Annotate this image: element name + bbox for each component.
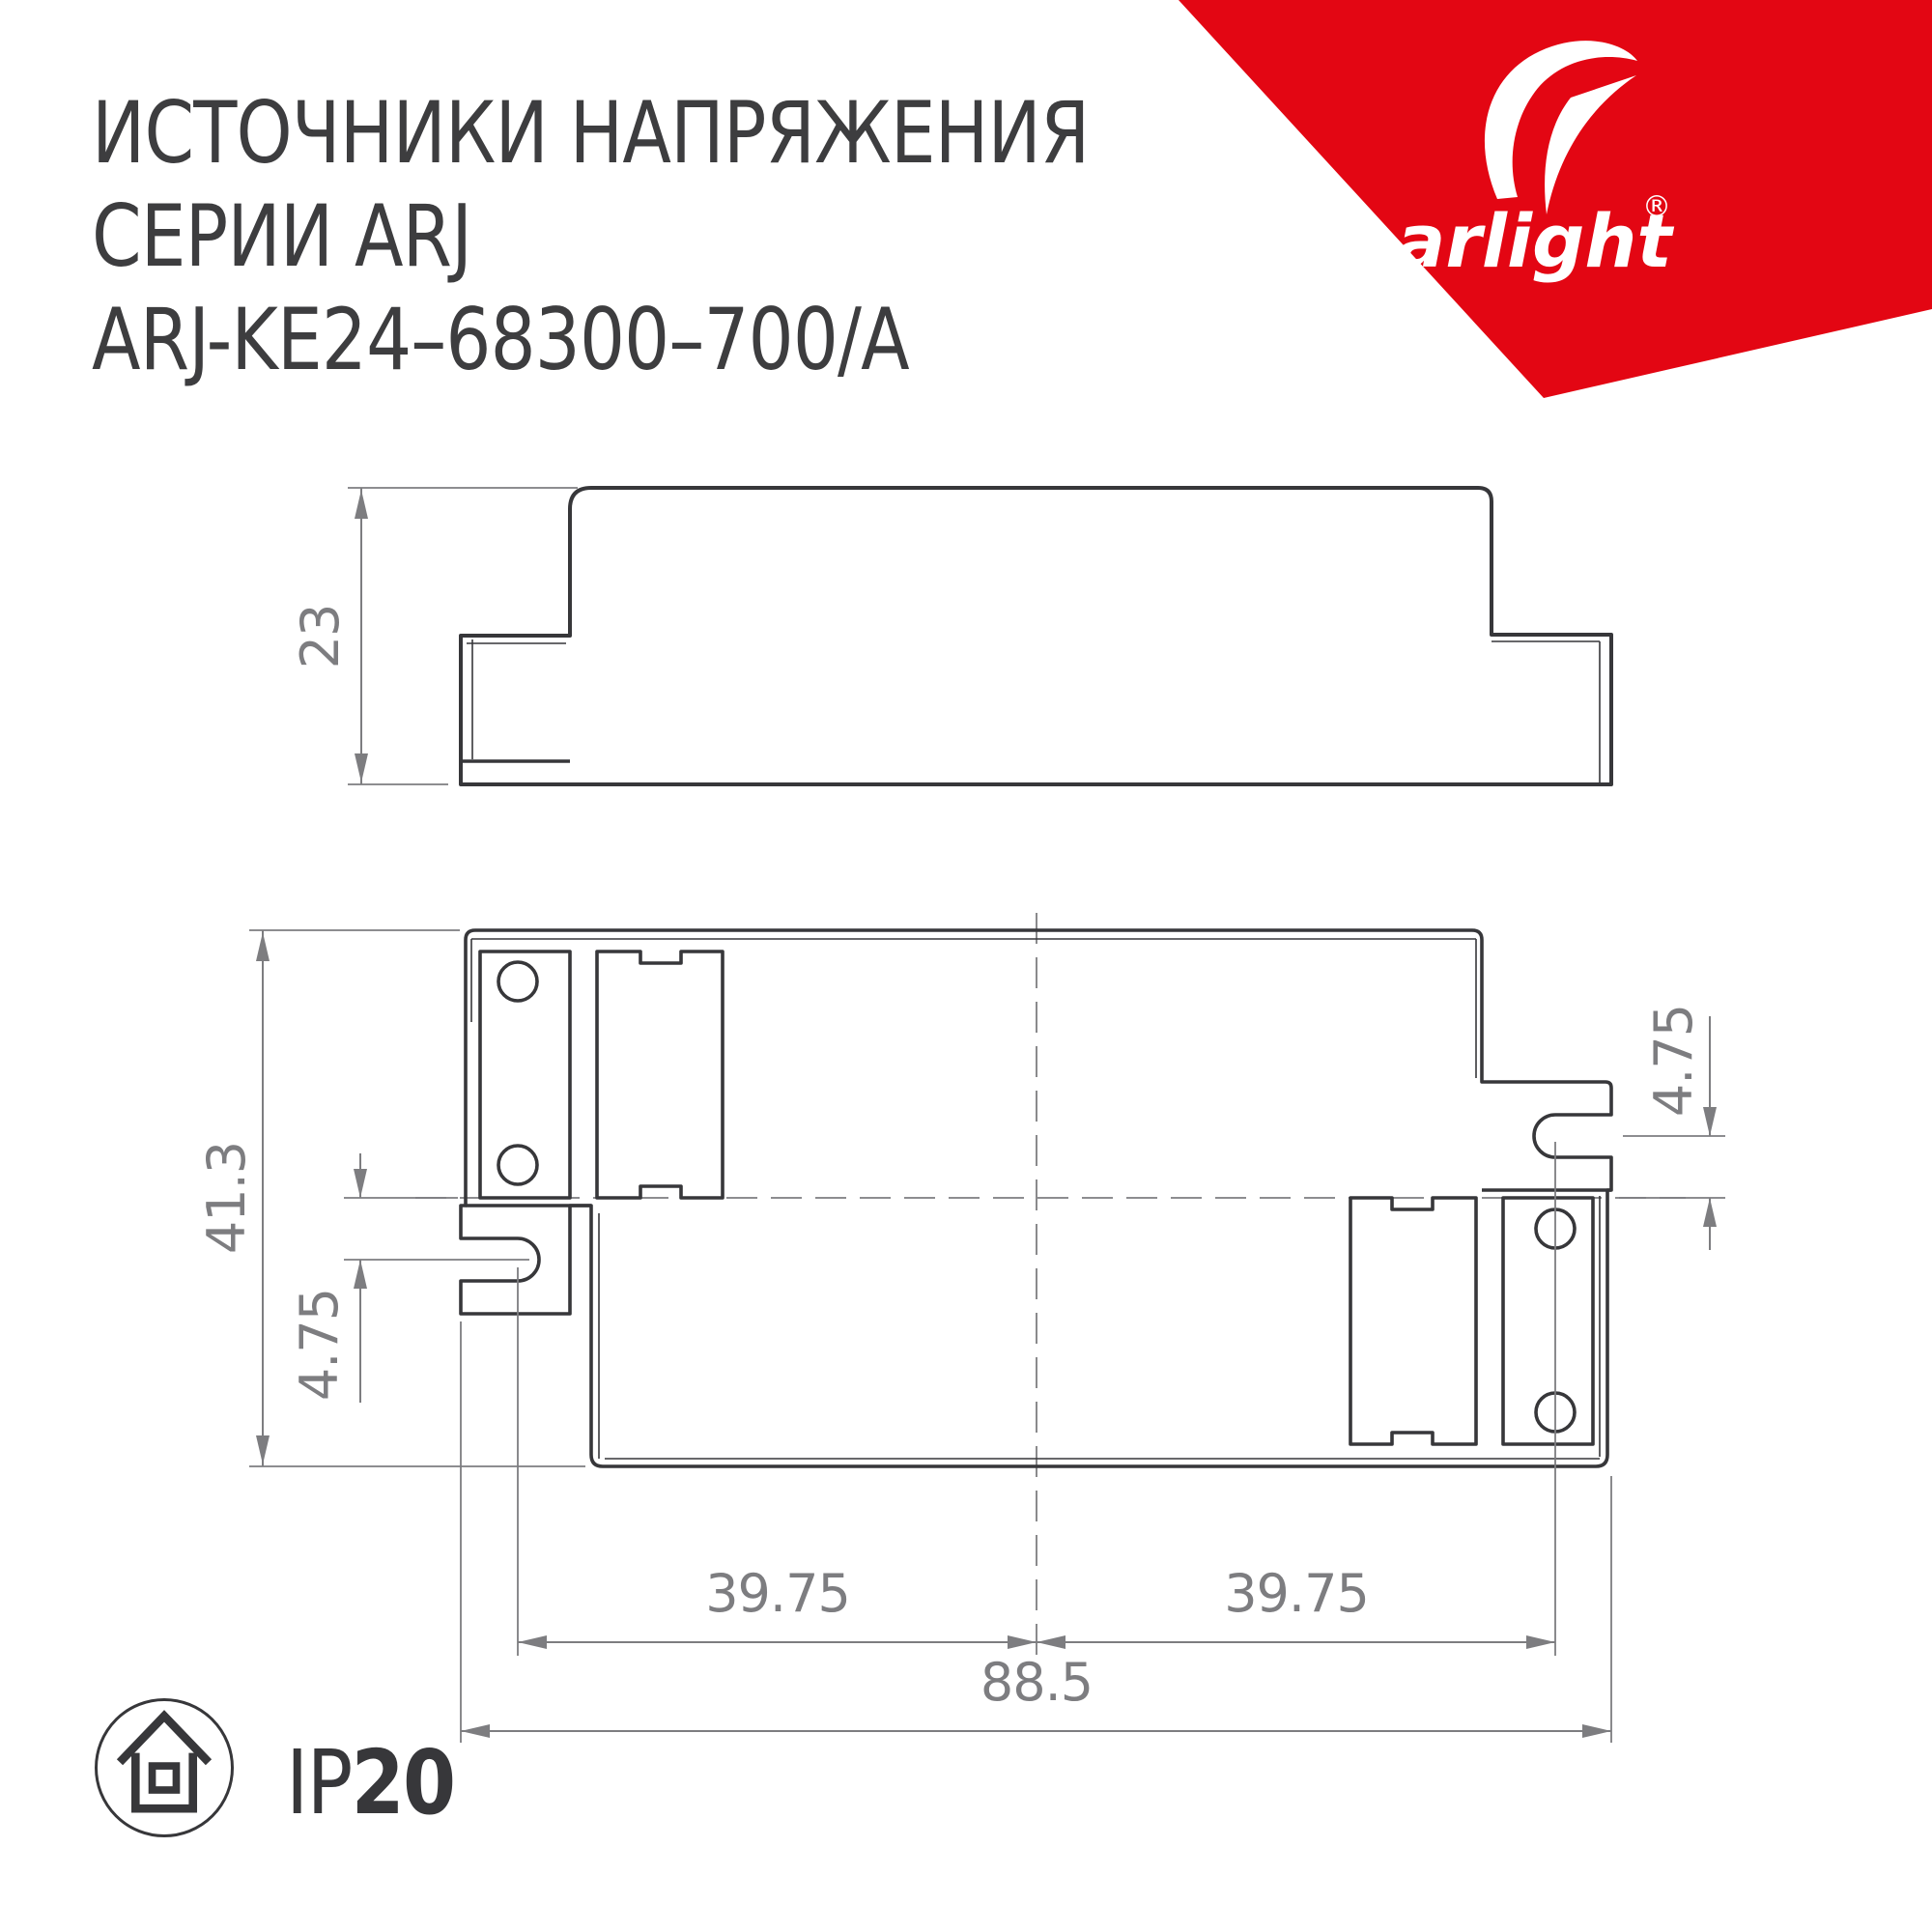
- screw-hole: [498, 962, 537, 1001]
- technical-drawing: 23: [0, 0, 1932, 1932]
- dim-overall-width-label: 88.5: [980, 1652, 1093, 1713]
- dim-overall-height-label: 41.3: [196, 1142, 257, 1254]
- ip-value: 20: [352, 1731, 455, 1834]
- dim-side-height-label: 23: [290, 605, 351, 669]
- side-view-drawing: [461, 488, 1611, 784]
- dim-mount-span: 39.75 39.75: [518, 1142, 1555, 1656]
- terminal-clip-top-left: [597, 952, 723, 1198]
- ip-badge: [95, 1698, 234, 1837]
- bottom-view-drawing: [415, 913, 1686, 1656]
- screw-hole: [498, 1146, 537, 1184]
- dim-slot-offset-left: 4.75: [289, 1153, 529, 1403]
- dim-slot-offset-right: 4.75: [1619, 1005, 1725, 1250]
- house-icon: [98, 1701, 231, 1834]
- dim-slot-offset-right-label: 4.75: [1643, 1005, 1704, 1117]
- mount-plate-bottom-right: [1503, 1198, 1593, 1444]
- dim-mount-span-right-label: 39.75: [1224, 1563, 1369, 1624]
- terminal-clip-bottom-right: [1350, 1198, 1476, 1444]
- mount-plate-top-left: [480, 952, 570, 1198]
- dim-slot-offset-left-label: 4.75: [289, 1289, 350, 1401]
- ip-rating-text: IP20: [286, 1731, 454, 1834]
- dim-mount-span-left-label: 39.75: [705, 1563, 850, 1624]
- ip-prefix: IP: [286, 1731, 352, 1834]
